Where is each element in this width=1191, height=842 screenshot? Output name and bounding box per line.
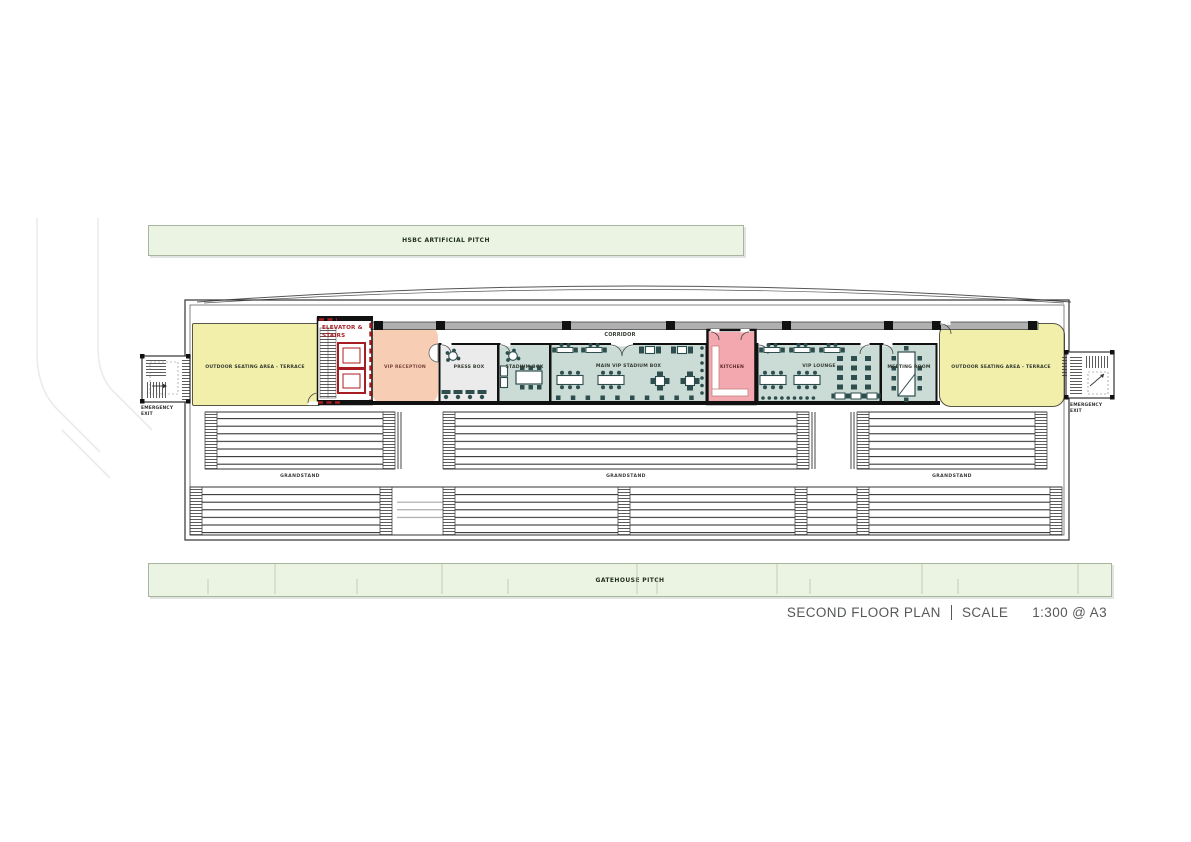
vip-lounge-label: VIP LOUNGE	[758, 364, 880, 370]
grandstand-lower-tier	[190, 487, 1062, 535]
stadium-box-room	[499, 345, 550, 403]
scale-label: SCALE	[962, 605, 1008, 620]
grandstand-label-right: GRANDSTAND	[902, 474, 1002, 479]
scale-value: 1:300 @ A3	[1032, 605, 1107, 620]
emergency-exit-left	[140, 354, 191, 404]
emergency-exit-right-label: EMERGENCY EXIT	[1070, 403, 1104, 415]
grandstand-label-left: GRANDSTAND	[250, 474, 350, 479]
site-context-paths	[37, 218, 152, 478]
gatehouse-pitch-bar: GATEHOUSE PITCH	[148, 563, 1112, 597]
kitchen-label: KITCHEN	[709, 365, 755, 371]
vip-reception-label: VIP RECEPTION	[373, 365, 437, 371]
title-block: SECOND FLOOR PLAN SCALE 1:300 @ A3	[660, 605, 1107, 620]
hsbc-pitch-bar: HSBC ARTIFICIAL PITCH	[148, 225, 744, 256]
grandstand-upper-tier	[205, 412, 1047, 469]
hsbc-pitch-label: HSBC ARTIFICIAL PITCH	[402, 237, 490, 244]
main-vip-room	[551, 345, 706, 403]
main-vip-label: MAIN VIP STADIUM BOX	[551, 364, 706, 370]
vip-lounge-room	[758, 345, 880, 403]
title-separator	[951, 605, 952, 620]
stadium-box-label: STADIUM BOX	[499, 365, 550, 371]
corridor-label: CORRIDOR	[570, 332, 670, 339]
press-box-label: PRESS BOX	[441, 365, 497, 371]
emergency-exit-right	[1062, 350, 1115, 400]
terrace-left-label: OUTDOOR SEATING AREA - TERRACE	[194, 365, 316, 371]
roof-arcs	[197, 286, 1071, 303]
terrace-right-label: OUTDOOR SEATING AREA - TERRACE	[940, 365, 1062, 371]
plan-linework	[0, 0, 1191, 842]
corridor-band	[371, 321, 1038, 330]
gatehouse-pitch-label: GATEHOUSE PITCH	[596, 577, 665, 584]
meeting-room-room	[882, 345, 936, 403]
emergency-exit-left-label: EMERGENCY EXIT	[141, 406, 175, 418]
floorplan-canvas: HSBC ARTIFICIAL PITCH GATEHOUSE PITCH	[0, 0, 1191, 842]
grandstand-label-center: GRANDSTAND	[576, 474, 676, 479]
plan-title: SECOND FLOOR PLAN	[787, 605, 941, 620]
elevator-stairs-label: ELEVATOR & STAIRS	[322, 325, 366, 340]
meeting-room-label: MEETING ROOM	[882, 365, 936, 371]
press-box-room	[440, 345, 498, 403]
